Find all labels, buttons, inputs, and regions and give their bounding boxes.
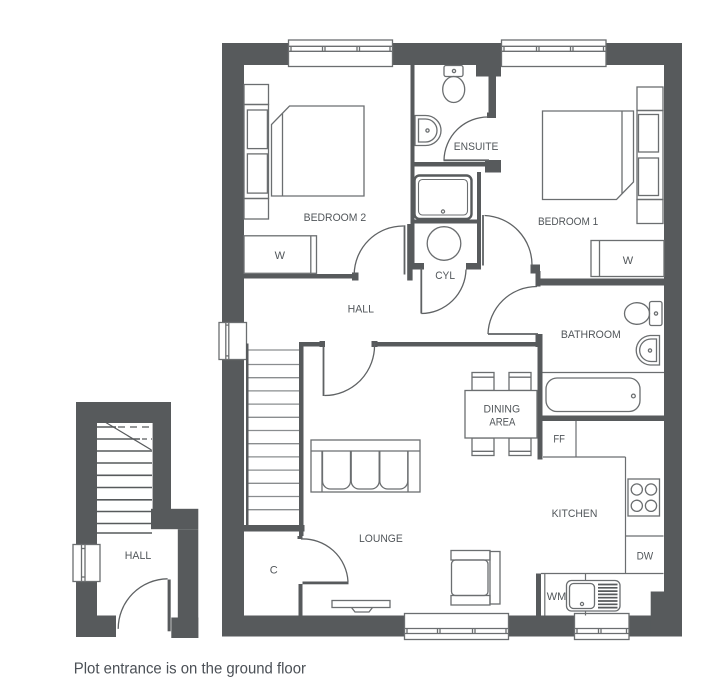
svg-text:WM: WM: [547, 591, 567, 603]
svg-text:AREA: AREA: [489, 417, 516, 429]
svg-text:ENSUITE: ENSUITE: [454, 141, 499, 153]
svg-text:FF: FF: [553, 433, 565, 445]
svg-text:KITCHEN: KITCHEN: [552, 508, 598, 520]
svg-text:HALL: HALL: [125, 550, 151, 562]
svg-text:HALL: HALL: [348, 303, 374, 315]
svg-text:W: W: [623, 255, 634, 267]
svg-text:BATHROOM: BATHROOM: [561, 329, 621, 341]
svg-text:BEDROOM 2: BEDROOM 2: [304, 212, 367, 224]
svg-text:LOUNGE: LOUNGE: [359, 533, 403, 545]
svg-text:Plot entrance is on the ground: Plot entrance is on the ground floor: [74, 661, 306, 678]
svg-text:C: C: [270, 565, 278, 577]
svg-text:DW: DW: [637, 550, 654, 562]
svg-text:BEDROOM 1: BEDROOM 1: [538, 216, 598, 228]
svg-text:DINING: DINING: [484, 403, 521, 415]
svg-text:CYL: CYL: [435, 270, 455, 282]
svg-text:W: W: [275, 250, 286, 262]
